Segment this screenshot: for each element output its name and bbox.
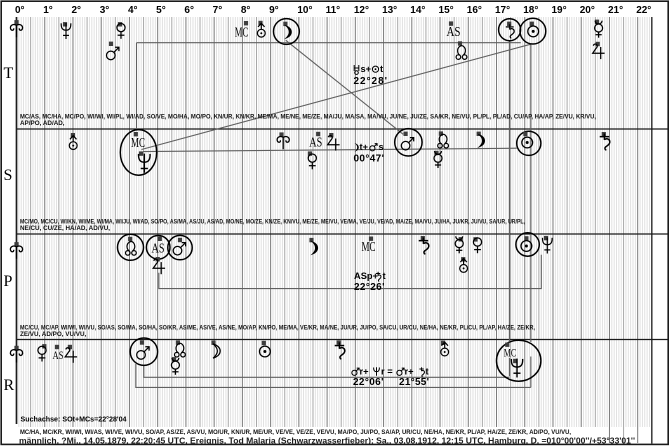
svg-text:0°: 0° — [15, 5, 25, 16]
svg-text:R: R — [4, 377, 15, 394]
svg-text:7°: 7° — [213, 5, 223, 16]
svg-text:T: T — [4, 65, 14, 82]
svg-text:10°: 10° — [297, 5, 312, 16]
svg-text:17°: 17° — [495, 5, 510, 16]
svg-text:11°: 11° — [326, 5, 341, 16]
svg-text:P: P — [4, 273, 13, 290]
svg-text:r+: r+ — [405, 367, 415, 377]
svg-text:ZE/VU, AD/PO, VU/VU,: ZE/VU, AD/PO, VU/VU, — [20, 331, 86, 338]
svg-text:r+: r+ — [360, 367, 370, 377]
svg-text:13°: 13° — [382, 5, 397, 16]
svg-text:12°: 12° — [354, 5, 369, 16]
svg-text:t: t — [426, 367, 429, 377]
svg-text:t: t — [380, 64, 383, 74]
svg-text:1°: 1° — [43, 5, 53, 16]
svg-text:MC/CU, MC/AP, WI/WI, WI/VU, SO: MC/CU, MC/AP, WI/WI, WI/VU, SO/AS, SO/MA… — [20, 324, 535, 331]
svg-text:S: S — [4, 167, 13, 184]
svg-text:AS: AS — [53, 348, 64, 362]
svg-text:15°: 15° — [439, 5, 454, 16]
svg-text:9°: 9° — [269, 5, 279, 16]
svg-text:NE/CU, CU/ZE, HA/AD, AD/VU,: NE/CU, CU/ZE, HA/AD, AD/VU, — [20, 225, 110, 232]
svg-text:14°: 14° — [410, 5, 425, 16]
svg-text:s+: s+ — [361, 64, 372, 74]
svg-text:r =: r = — [381, 367, 393, 377]
svg-text:MC: MC — [362, 239, 376, 254]
svg-text:MC/AS, MC/HA, MC/PO, WI/WI, WI: MC/AS, MC/HA, MC/PO, WI/WI, WI/PL, WI/AD… — [20, 113, 596, 120]
svg-text:22°06': 22°06' — [353, 377, 384, 388]
svg-text:20°: 20° — [580, 5, 595, 16]
svg-text:21°: 21° — [608, 5, 623, 16]
svg-text:t+: t+ — [360, 142, 369, 152]
svg-text:5°: 5° — [156, 5, 166, 16]
svg-text:Suchachse: SOt+MCs=22°28'04: Suchachse: SOt+MCs=22°28'04 — [21, 415, 128, 424]
svg-text:21°55': 21°55' — [399, 377, 429, 388]
svg-text:6°: 6° — [184, 5, 194, 16]
svg-text:22°28': 22°28' — [354, 76, 388, 87]
svg-text:ASp+: ASp+ — [354, 271, 379, 281]
svg-text:AS: AS — [309, 134, 322, 149]
svg-text:2°: 2° — [71, 5, 81, 16]
svg-text:8°: 8° — [241, 5, 251, 16]
svg-text:22°: 22° — [636, 5, 651, 16]
svg-text:4°: 4° — [128, 5, 138, 16]
svg-text:18°: 18° — [523, 5, 538, 16]
svg-text:00°47': 00°47' — [354, 154, 385, 165]
svg-text:t: t — [383, 271, 386, 281]
svg-text:AS: AS — [152, 240, 165, 255]
svg-text:MC: MC — [131, 135, 145, 150]
svg-text:16°: 16° — [467, 5, 482, 16]
svg-text:22°26': 22°26' — [354, 282, 385, 293]
svg-text:AP/PO, AD/AD,: AP/PO, AD/AD, — [20, 120, 65, 127]
svg-text:19°: 19° — [551, 5, 566, 16]
svg-text:MC: MC — [504, 346, 517, 360]
svg-text:s: s — [379, 142, 384, 152]
svg-text:3°: 3° — [100, 5, 110, 16]
svg-text:MC: MC — [235, 24, 249, 39]
svg-text:AS: AS — [447, 24, 461, 39]
